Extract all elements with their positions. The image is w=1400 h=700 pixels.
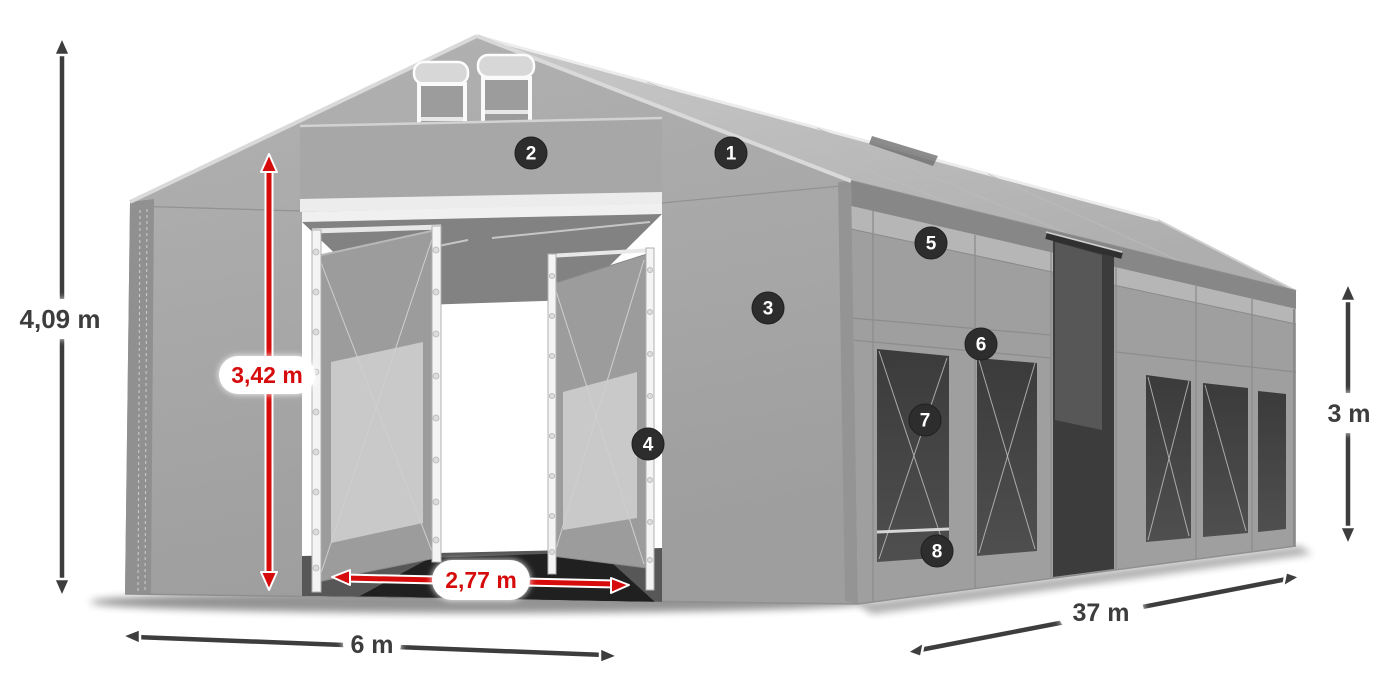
callout-number: 4 [643, 435, 654, 456]
callout-number: 3 [763, 299, 774, 320]
tent-dimension-diagram: 4,09 m 3,42 m 2,77 m 6 m 37 m 3 m 1 2 3 … [0, 0, 1400, 700]
door-frame-pole [432, 226, 441, 562]
dimension-label-length: 37 m [1058, 591, 1144, 633]
callout-badge-2: 2 [515, 137, 547, 169]
callout-badge-8: 8 [921, 535, 953, 567]
entrance-header [300, 118, 662, 212]
sliding-door-opening [1046, 232, 1122, 577]
callout-number: 5 [926, 234, 937, 255]
side-window [1258, 391, 1286, 532]
side-window [977, 358, 1037, 556]
width-value: 6 m [350, 631, 393, 659]
door-flap-window [331, 342, 423, 543]
callout-number: 6 [976, 335, 987, 356]
entrance-width-value: 2,77 m [445, 567, 517, 593]
dimension-label-total-height: 4,09 m [8, 299, 112, 339]
side-window [877, 349, 949, 562]
callout-badge-7: 7 [909, 404, 941, 436]
dimension-label-entrance-height: 3,42 m [219, 356, 315, 394]
callout-badge-1: 1 [715, 137, 747, 169]
side-window [1203, 383, 1248, 537]
door-frame-pole [646, 248, 654, 590]
dimension-label-entrance-width: 2,77 m [432, 560, 530, 600]
dimension-label-side-height: 3 m [1311, 393, 1387, 433]
callout-number: 1 [726, 144, 737, 165]
dimension-label-width: 6 m [343, 624, 401, 664]
total-height-value: 4,09 m [20, 304, 101, 334]
door-frame-pole [548, 254, 556, 574]
side-window [1146, 375, 1191, 542]
entrance-opening [302, 204, 662, 602]
entrance-height-value: 3,42 m [231, 362, 303, 388]
side-height-value: 3 m [1327, 400, 1370, 428]
callout-number: 8 [932, 542, 943, 563]
callout-badge-3: 3 [752, 292, 784, 324]
door-left-flap [317, 230, 436, 582]
door-right-flap [552, 254, 647, 568]
callout-number: 7 [920, 411, 931, 432]
length-value: 37 m [1073, 599, 1130, 627]
callout-number: 2 [526, 144, 537, 165]
callout-badge-4: 4 [632, 428, 664, 460]
gable-vent-right [478, 55, 534, 126]
callout-badge-6: 6 [965, 328, 997, 360]
callout-badge-5: 5 [915, 227, 947, 259]
